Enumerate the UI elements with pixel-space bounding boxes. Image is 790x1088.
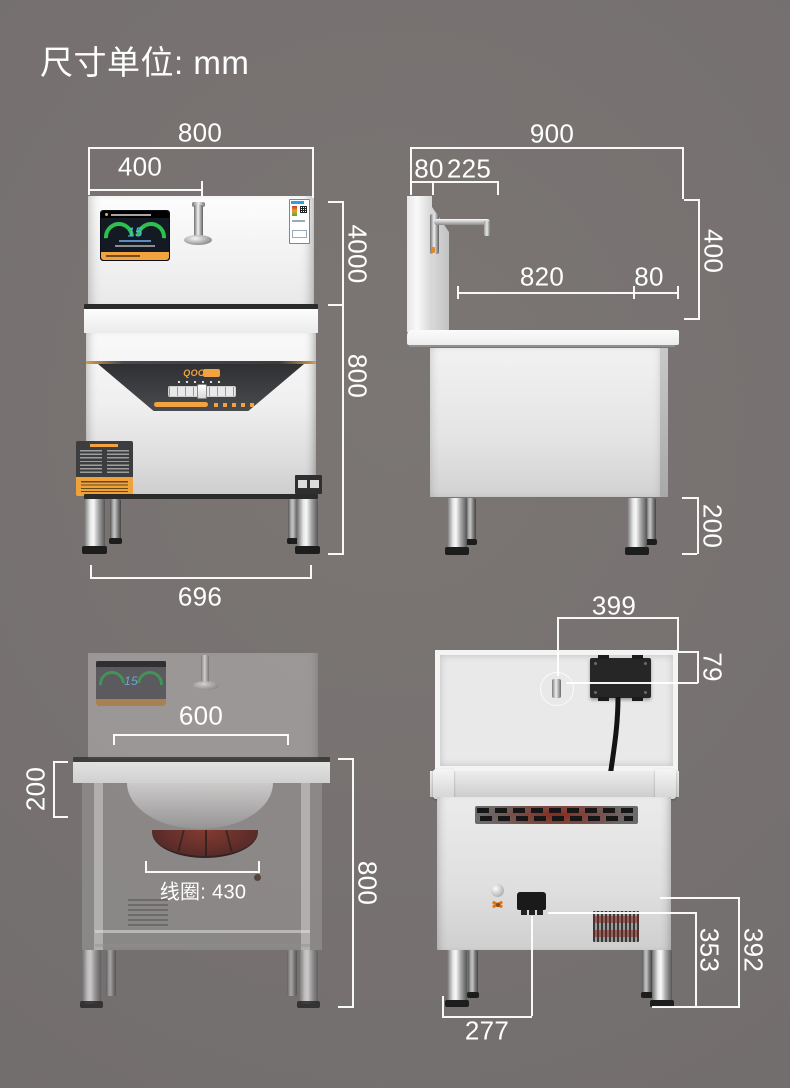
warning-label-top	[76, 441, 133, 477]
dim-tick	[677, 617, 679, 652]
rating-cell-2	[310, 480, 319, 488]
dim-front-display-width: 400	[118, 152, 162, 183]
ghost-shelf-bottom	[95, 944, 310, 947]
dim-front-upper-height: 4000	[342, 224, 373, 283]
dim-tick	[53, 816, 68, 818]
side-body	[430, 348, 668, 497]
leg	[447, 950, 467, 1003]
dim-front-width: 800	[178, 118, 222, 149]
screen-logo-dot	[105, 213, 108, 216]
leg	[82, 950, 101, 1004]
energy-label	[289, 199, 310, 244]
screen-footer-text-bar	[106, 255, 140, 257]
dim-tick	[633, 286, 635, 299]
energy-label-title-bar	[291, 201, 304, 204]
dim-line	[88, 147, 313, 149]
energy-bars	[292, 206, 297, 216]
vent-slots-row	[480, 816, 633, 821]
dim-tick	[53, 761, 68, 763]
display-screen: 15	[100, 210, 170, 261]
leg	[84, 499, 105, 549]
dim-drain-offset: 277	[465, 1016, 509, 1047]
dim-tick	[684, 318, 699, 320]
leg	[106, 950, 116, 996]
leg-foot	[80, 1001, 103, 1008]
ghost-post-right	[301, 783, 310, 950]
faucet-spout	[434, 219, 490, 225]
leg	[652, 950, 672, 1003]
screen-header-text-bar	[111, 214, 151, 216]
dim-ghost-body-height: 800	[352, 861, 383, 905]
rating-plate	[295, 475, 322, 494]
junction-screw	[644, 662, 647, 665]
dim-opening-width: 600	[179, 701, 223, 732]
coil-spoke	[205, 830, 207, 856]
leg-foot	[445, 1000, 469, 1007]
dim-tick	[682, 553, 697, 555]
counter-side	[407, 330, 679, 345]
control-dots-row	[178, 381, 224, 383]
screen-footer	[101, 252, 169, 260]
dim-tick	[677, 286, 679, 299]
screen-readout-bar-2	[115, 245, 155, 247]
dim-front-leg-span: 696	[178, 582, 222, 613]
rail-cap-left	[433, 769, 454, 799]
junction-screw	[594, 662, 597, 665]
water-inlet	[552, 679, 561, 698]
dim-side-counter-depth: 820	[520, 262, 564, 293]
dim-box-height: 79	[697, 652, 728, 682]
leg	[287, 950, 297, 996]
energy-label-line-1	[292, 220, 305, 222]
leg-foot	[82, 546, 107, 554]
dim-tick	[410, 181, 412, 195]
dim-front-lower-height: 800	[342, 354, 373, 398]
dim-tick	[682, 147, 684, 199]
drain-connector	[517, 892, 546, 910]
brand-logo: QOC	[183, 368, 204, 378]
dim-vent-height: 353	[694, 928, 725, 972]
slider-knob	[197, 384, 207, 399]
dim-tick	[548, 912, 696, 914]
rating-cell-1	[298, 480, 307, 488]
leg-foot	[445, 547, 469, 555]
dim-tick	[682, 497, 697, 499]
junction-screw	[594, 691, 597, 694]
dim-tick	[432, 181, 434, 195]
ghost-screen-footer	[96, 699, 166, 706]
ghost-screen: 15	[96, 661, 166, 706]
dim-tick	[684, 199, 699, 201]
back-vent-top	[475, 806, 638, 824]
leg-foot	[297, 1001, 320, 1008]
dim-tick	[287, 734, 289, 745]
screen-readout-bar-1	[119, 240, 151, 242]
dim-line	[88, 189, 202, 191]
dim-side-rear-overhang: 80	[634, 262, 664, 293]
dim-tick	[566, 682, 698, 684]
faucet-pipe	[194, 205, 203, 239]
leg	[447, 498, 467, 550]
faucet-spout-tip	[484, 221, 490, 236]
dimension-diagram: 尺寸单位: mm 15	[0, 0, 790, 1088]
dim-tick	[113, 734, 115, 745]
leg	[642, 950, 652, 995]
dim-tick	[338, 758, 353, 760]
ghost-screen-header	[96, 661, 166, 667]
dim-side-leg-height: 200	[697, 504, 728, 548]
dim-tick	[442, 996, 444, 1016]
dim-line	[145, 871, 260, 873]
ghost-shelf-top	[95, 930, 310, 933]
ghost-faucet-base	[193, 681, 219, 690]
dim-side-depth: 900	[530, 119, 574, 150]
junction-tab	[632, 655, 643, 659]
dim-tick	[312, 147, 314, 198]
dim-drain-height: 392	[738, 928, 769, 972]
hazard-warning-icon	[490, 899, 505, 910]
dim-line	[113, 734, 288, 736]
dim-tick	[201, 181, 203, 197]
dim-tick	[328, 553, 343, 555]
coil-spoke	[226, 830, 233, 852]
dim-tick	[531, 916, 533, 1016]
fitting-circle	[491, 884, 504, 897]
dim-line	[410, 147, 682, 149]
back-vent-side	[593, 911, 639, 942]
junction-box	[590, 658, 651, 698]
junction-tab	[598, 655, 609, 659]
screen-temp-value: 15	[127, 225, 142, 240]
leg-foot	[109, 538, 122, 544]
brand-badge	[203, 369, 220, 377]
leg-foot	[295, 546, 320, 554]
leg	[466, 498, 476, 542]
dim-tick	[457, 286, 459, 299]
warning-text-col-2	[107, 450, 129, 474]
leg	[110, 499, 121, 541]
dim-tick	[328, 201, 343, 203]
dim-side-back-thickness: 80	[414, 154, 444, 185]
rail-cap-right	[655, 769, 676, 799]
dim-coil-label: 线圈: 430	[160, 876, 247, 905]
dim-tick	[88, 147, 90, 195]
warning-bottom-text	[81, 481, 128, 492]
accent-line	[86, 361, 316, 364]
faucet-valve-dot	[431, 247, 435, 253]
leg	[297, 499, 318, 549]
side-body-edge	[660, 348, 668, 497]
dim-tick	[145, 861, 147, 871]
energy-label-box	[292, 230, 307, 238]
dim-line	[652, 1006, 740, 1008]
dim-counter-height: 200	[21, 767, 52, 811]
counter-apron-front	[84, 309, 318, 333]
dim-line	[410, 181, 497, 183]
dim-line	[53, 761, 55, 818]
dim-line	[90, 577, 312, 579]
ghost-screen-value: 15	[124, 674, 138, 688]
leg	[646, 498, 656, 542]
leg-foot	[467, 992, 479, 998]
dim-tick	[328, 304, 343, 306]
dim-tick	[338, 1006, 353, 1008]
dim-side-backsplash-height: 400	[698, 229, 729, 273]
dim-line	[457, 292, 677, 294]
counter-underline	[409, 345, 675, 347]
coil-spoke	[177, 830, 184, 852]
dim-side-faucet-offset: 225	[447, 154, 491, 185]
dim-tick	[497, 181, 499, 195]
page-title: 尺寸单位: mm	[40, 36, 249, 84]
warning-label-title	[90, 444, 118, 447]
leg	[627, 498, 647, 550]
dim-tick	[90, 565, 92, 577]
back-rail	[430, 771, 679, 797]
ghost-post-left	[94, 783, 103, 950]
vent-slots-row	[477, 808, 636, 813]
junction-tab	[632, 697, 643, 701]
power-bar	[154, 402, 208, 407]
dim-tick	[310, 565, 312, 577]
ghost-knob	[254, 874, 261, 881]
leg	[299, 950, 318, 1004]
dim-tick	[557, 617, 559, 676]
ghost-counter	[73, 762, 330, 783]
dim-tick	[660, 897, 739, 899]
dim-line	[557, 617, 678, 619]
leg-foot	[625, 547, 649, 555]
faucet-base	[184, 235, 212, 245]
leg	[468, 950, 478, 995]
warning-label	[76, 441, 133, 496]
dim-tick	[258, 861, 260, 871]
junction-screw	[644, 691, 647, 694]
warning-text-col-1	[80, 450, 102, 474]
qr-code-icon	[300, 206, 307, 213]
side-backsplash	[407, 196, 432, 332]
screen-header	[101, 211, 169, 218]
